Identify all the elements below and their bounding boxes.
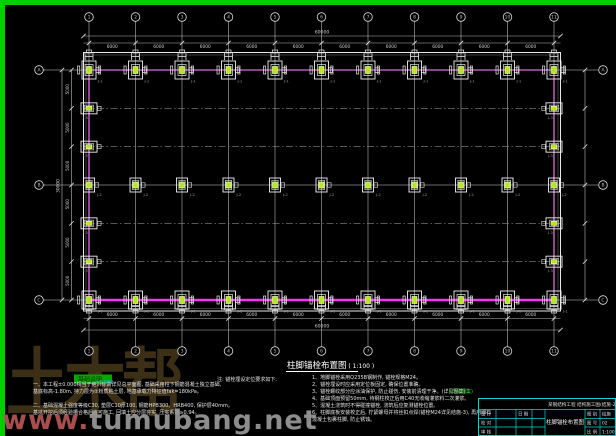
axis-bubble-top-11-label: 11 (551, 15, 557, 21)
note-highlight: ±0.000 (95, 380, 114, 386)
axis-bubble-top-4-label: 4 (227, 15, 230, 21)
footing-label: J-1 (469, 79, 475, 84)
dim-text-top-bay: 6000 (107, 44, 118, 50)
frame-border-left (0, 0, 5, 436)
axis-bubble-top-7-label: 7 (367, 15, 370, 21)
titleblock-cell: 审 核 (481, 429, 492, 436)
footing-label: J-3 (547, 153, 553, 158)
anchor-bolt-plate (366, 297, 371, 304)
anchor-bolt-plate (552, 67, 557, 74)
axis-bubble-left-B-label: B (37, 183, 40, 189)
titleblock-project: 某钢结构工程 结构施工图(结施-2) (548, 401, 616, 408)
axis-bubble-bottom-10-label: 10 (505, 349, 511, 355)
anchor-bolt-plate (319, 182, 324, 188)
footing-label: J-1 (562, 79, 568, 84)
footing-label: J-1 (237, 309, 243, 314)
dim-text-top-bay: 6000 (339, 44, 350, 50)
footing-label: J-3 (82, 115, 88, 120)
watermark-url-prefix: www. (2, 405, 89, 436)
dim-text-top-bay: 6000 (386, 44, 397, 50)
dim-text-left-seg: 5000 (65, 199, 70, 210)
dim-text-top-bay: 6000 (479, 44, 490, 50)
axis-bubble-bottom-1-label: 1 (88, 349, 91, 355)
anchor-bolt-plate (226, 182, 231, 188)
footing-label: J-2 (422, 192, 428, 197)
footing-label: J-2 (515, 192, 521, 197)
footing-label: J-1 (330, 309, 336, 314)
titleblock-cell: 校 对 (481, 420, 492, 427)
footing-label: J-1 (516, 309, 522, 314)
footing-label: J-1 (237, 79, 243, 84)
watermark-url: www.tumubang.net (2, 405, 318, 436)
footing-label: J-2 (468, 192, 474, 197)
footing-label: J-2 (236, 192, 242, 197)
dim-text-bottom-bay: 6000 (386, 312, 397, 318)
anchor-bolt-plate (551, 260, 557, 264)
dim-text-top-bay: 6000 (525, 44, 536, 50)
anchor-bolt-plate (551, 145, 557, 149)
dim-text-bottom-bay: 6000 (246, 312, 257, 318)
axis-bubble-right-C-label: C (601, 298, 604, 304)
anchor-bolt-plate (86, 145, 92, 149)
footing-label: J-2 (189, 192, 195, 197)
dim-text-bottom-bay: 6000 (107, 312, 118, 318)
anchor-bolt-plate (86, 221, 92, 225)
anchor-bolt-plate (552, 297, 557, 304)
footing-label: J-3 (547, 115, 553, 120)
footing-label: J-2 (329, 192, 335, 197)
note-line-right: 6、柱脚底板安装校正后, 拧紧螺母并将丝扣点焊(锚栓M24详见结施-3), 再用… (312, 409, 491, 416)
axis-bubble-top-6-label: 6 (320, 15, 323, 21)
note-line-right: 2、锚栓埋设时应采用定位板固定, 确保位置准确。 (312, 381, 423, 388)
axis-bubble-top-3-label: 3 (181, 15, 184, 21)
footing-label: J-1 (376, 79, 382, 84)
titleblock-cell: 日 期 (518, 412, 529, 418)
footing-label: J-1 (423, 309, 429, 314)
dim-text-top-bay: 6000 (293, 44, 304, 50)
dim-text-bottom-bay: 6000 (479, 312, 490, 318)
dim-text-left-seg: 5000 (65, 122, 70, 133)
anchor-bolt-plate (505, 297, 510, 304)
watermark-url-rest: tumubang.net (89, 405, 317, 436)
axis-bubble-bottom-5-label: 5 (274, 349, 277, 355)
anchor-bolt-plate (366, 67, 371, 74)
footing-label: J-2 (561, 192, 567, 197)
note-highlight: (详见图集) (449, 388, 473, 395)
axis-bubble-bottom-6-label: 6 (320, 349, 323, 355)
anchor-bolt-plate (412, 297, 417, 304)
axis-bubble-bottom-8-label: 8 (413, 349, 416, 355)
anchor-bolt-plate (412, 67, 417, 74)
anchor-bolt-plate (180, 297, 185, 304)
anchor-bolt-plate (180, 67, 185, 74)
anchor-bolt-plate (459, 297, 464, 304)
dim-text-left-seg: 5000 (65, 84, 70, 95)
axis-bubble-top-10-label: 10 (505, 15, 511, 21)
note-line-right: 3、锚栓螺纹部分应涂油保护, 防止碰伤, 安装前清理干净。(详见图集) (312, 388, 465, 395)
footing-label: J-1 (144, 79, 150, 84)
footing-label: J-2 (375, 192, 381, 197)
footing-label: J-3 (82, 153, 88, 158)
anchor-bolt-plate (319, 297, 324, 304)
dim-text-bottom-bay: 6000 (153, 312, 164, 318)
anchor-bolt-plate (551, 221, 557, 225)
dim-text-bottom-bay: 6000 (200, 312, 211, 318)
footing-label: J-2 (96, 192, 102, 197)
note-line-right: 1、地脚锚栓采用Q235B钢制作, 锚栓规格M24。 (312, 374, 421, 381)
dim-text-bottom-bay: 6000 (293, 312, 304, 318)
axis-bubble-top-1-label: 1 (88, 15, 91, 21)
frame-border-top (0, 0, 616, 5)
footing-label: J-1 (283, 309, 289, 314)
anchor-bolt-plate (366, 182, 371, 188)
titleblock-cell: 结施 (602, 411, 611, 418)
anchor-bolt-plate (412, 182, 417, 188)
footing-label: J-1 (190, 309, 196, 314)
axis-bubble-top-9-label: 9 (460, 15, 463, 21)
dim-text-bottom-bay: 6000 (339, 312, 350, 318)
anchor-bolt-plate (180, 182, 185, 188)
note-line-right: 4、基础顶面预留50mm, 待钢柱校正后用C40无收缩灌浆料二次灌浆。 (312, 395, 469, 402)
dim-text-left-seg: 5000 (65, 275, 70, 286)
anchor-bolt-plate (133, 297, 138, 304)
anchor-bolt-plate (87, 182, 92, 188)
anchor-bolt-plate (319, 67, 324, 74)
anchor-bolt-plate (133, 182, 138, 188)
anchor-bolt-plate (86, 260, 92, 264)
axis-bubble-bottom-3-label: 3 (181, 349, 184, 355)
axis-bubble-top-2-label: 2 (134, 15, 137, 21)
axis-bubble-top-8-label: 8 (413, 15, 416, 21)
dim-text-bottom-bay: 6000 (525, 312, 536, 318)
axis-bubble-right-B-label: B (601, 183, 604, 189)
footing-label: J-2 (143, 192, 149, 197)
dim-text-left-seg: 5000 (65, 237, 70, 248)
anchor-bolt-plate (133, 67, 138, 74)
footing-label: J-3 (82, 268, 88, 273)
dim-text-bottom-total: 60000 (315, 324, 330, 330)
footing-label: J-3 (547, 268, 553, 273)
axis-bubble-bottom-9-label: 9 (460, 349, 463, 355)
anchor-bolt-plate (226, 297, 231, 304)
titleblock-cell: 设 计 (481, 411, 492, 418)
note-line-right: 5、混凝土浇筑时不得碰撞锚栓, 浇筑后应复测锚栓位置。 (312, 402, 438, 409)
anchor-bolt-plate (226, 67, 231, 74)
footing-label: J-1 (190, 79, 196, 84)
note-line-left: 一、本工程±0.000相当于绝对标高详见总平面图, 基础采用柱下钢筋混凝土独立基… (33, 381, 222, 388)
footing-label: J-2 (282, 192, 288, 197)
footing-label: J-1 (330, 79, 336, 84)
dim-text-top-bay: 6000 (200, 44, 211, 50)
axis-bubble-top-5-label: 5 (274, 15, 277, 21)
dim-text-top-bay: 6000 (246, 44, 257, 50)
anchor-bolt-plate (86, 106, 92, 110)
dim-text-left-seg: 5000 (65, 160, 70, 171)
footing-label: J-1 (469, 309, 475, 314)
titleblock-cell: 1:100 (602, 430, 615, 436)
anchor-bolt-plate (273, 182, 278, 188)
footing-label: J-1 (376, 309, 382, 314)
footing-label: J-1 (423, 79, 429, 84)
note-line-right: 混凝土包裹柱脚, 防止锈蚀。 (312, 416, 375, 423)
titleblock-drawing-name: 柱脚锚栓布置图 (546, 418, 584, 426)
plan-caption: 柱脚锚栓布置图 ( 1:100 ) (287, 360, 374, 371)
anchor-bolt-plate (505, 182, 510, 188)
footing-label: J-1 (144, 309, 150, 314)
anchor-bolt-plate (273, 67, 278, 74)
footing-label: J-1 (97, 79, 103, 84)
anchor-bolt-plate (551, 106, 557, 110)
axis-bubble-bottom-4-label: 4 (227, 349, 230, 355)
footing-label: J-1 (562, 309, 568, 314)
anchor-bolt-plate (459, 67, 464, 74)
dim-text-left-total: 30000 (56, 179, 62, 193)
axis-bubble-bottom-7-label: 7 (367, 349, 370, 355)
dim-text-bottom-bay: 6000 (432, 312, 443, 318)
anchor-bolt-plate (87, 67, 92, 74)
dim-text-top-bay: 6000 (432, 44, 443, 50)
footing-label: J-3 (547, 230, 553, 235)
titleblock-cell: 比 例 (587, 429, 598, 436)
note-line-mid: 注: 锚栓埋设定位要求如下: (217, 376, 277, 383)
foundation-anchor-plan-drawing: 6000060006000600060006000600060006000600… (0, 0, 616, 436)
anchor-bolt-plate (273, 297, 278, 304)
axis-bubble-bottom-2-label: 2 (134, 349, 137, 355)
anchor-bolt-plate (87, 297, 92, 304)
titleblock-cell: 图 号 (587, 421, 598, 427)
dim-text-top-total: 60000 (315, 30, 330, 36)
dim-text-top-bay: 6000 (153, 44, 164, 50)
footing-label: J-1 (97, 309, 103, 314)
axis-bubble-left-C-label: C (37, 298, 40, 304)
axis-bubble-bottom-11-label: 11 (551, 349, 557, 355)
titleblock-cell: 图 别 (587, 411, 597, 418)
anchor-bolt-plate (459, 182, 464, 188)
footing-label: J-1 (283, 79, 289, 84)
footing-label: J-3 (82, 230, 88, 235)
note-line-left: 基底标高-1.80m, 持力层为②粉质粘土层, 地基承载力特征值fak=180k… (33, 388, 202, 395)
footing-label: J-1 (516, 79, 522, 84)
cad-screenshot: 土木帮 600006000600060006000600060006000600… (0, 0, 616, 436)
anchor-bolt-plate (552, 182, 557, 188)
titleblock-cell: 02 (602, 421, 608, 427)
anchor-bolt-plate (505, 67, 510, 74)
